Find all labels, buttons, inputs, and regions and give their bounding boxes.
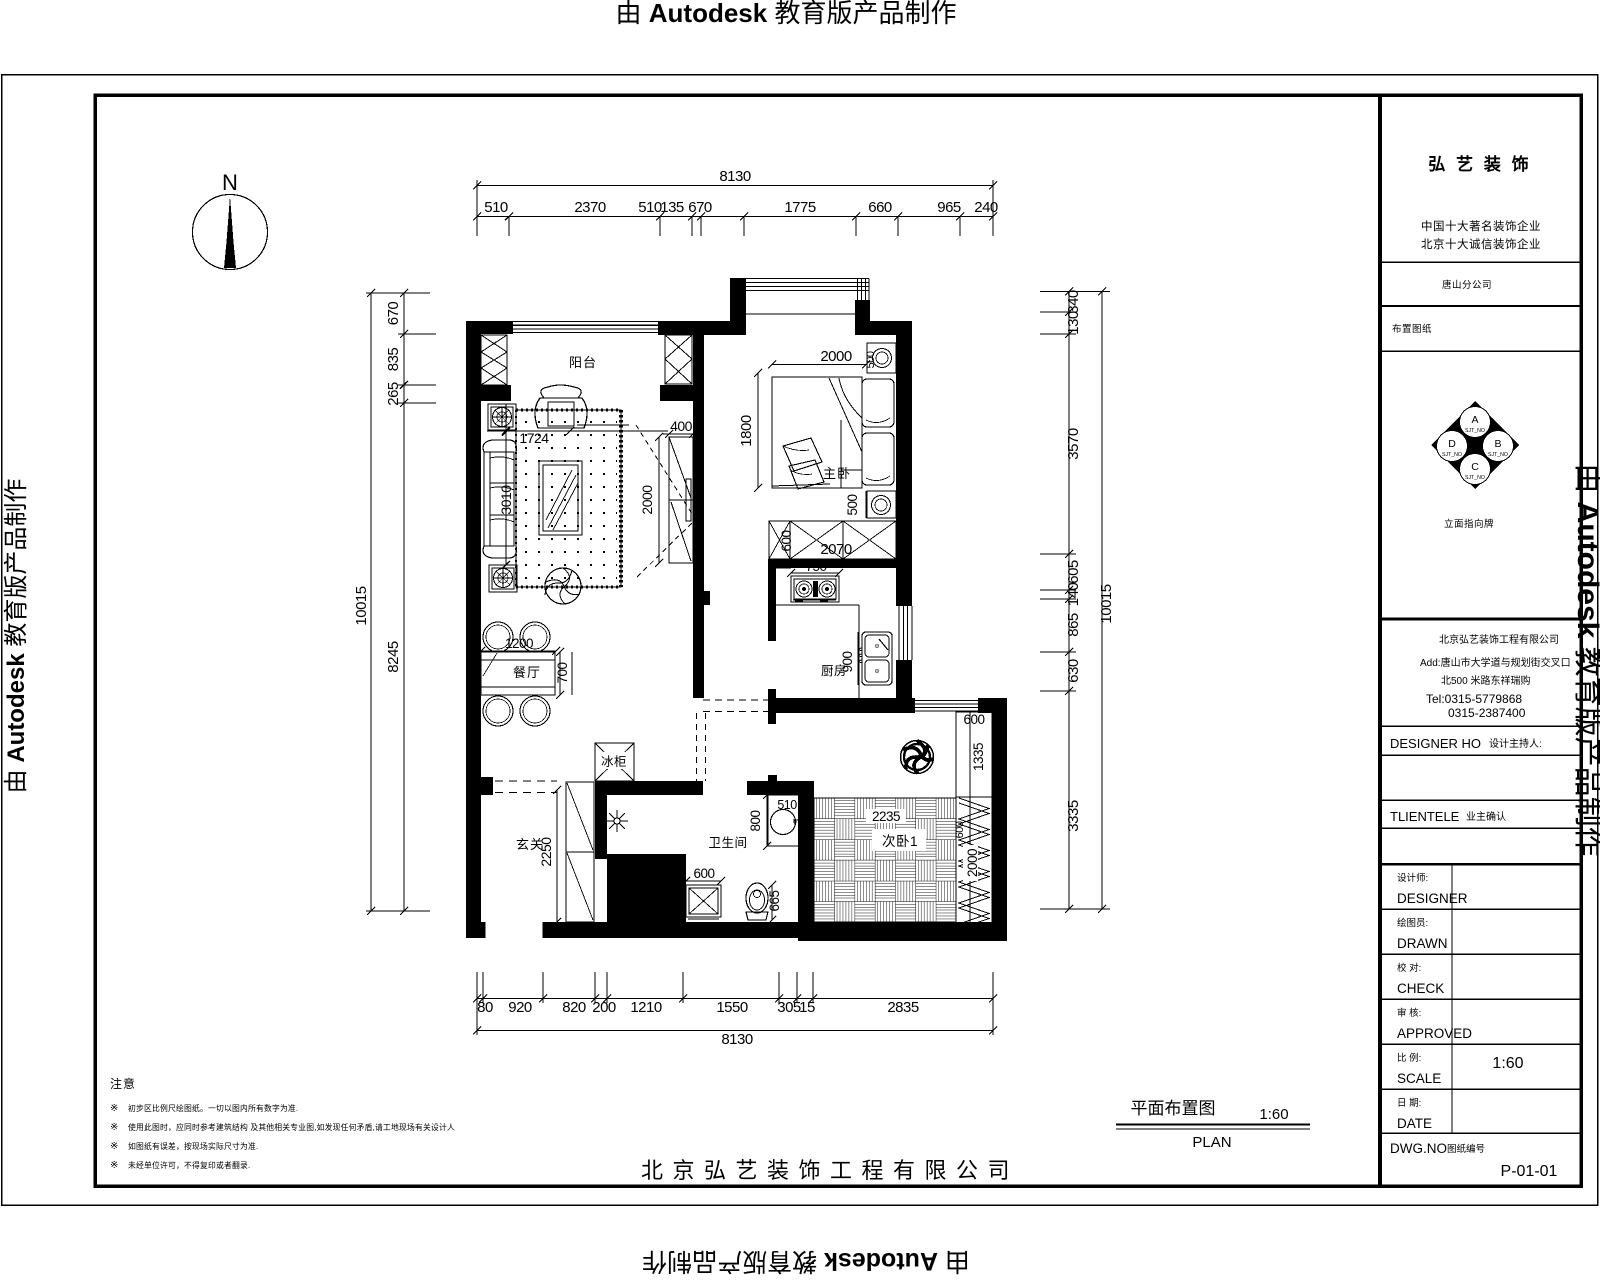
svg-text:业主确认: 业主确认 [1466,810,1506,823]
svg-text:绘图员:: 绘图员: [1397,917,1428,929]
svg-text:餐厅: 餐厅 [513,665,541,680]
svg-text:冰柜: 冰柜 [601,755,627,769]
svg-text:500: 500 [845,494,860,515]
svg-text:3335: 3335 [1065,800,1082,832]
svg-text:965: 965 [937,199,961,216]
svg-text:B: B [1494,438,1501,450]
svg-text:15: 15 [799,999,815,1016]
svg-text:3570: 3570 [1065,428,1082,460]
svg-text:750: 750 [805,559,826,574]
svg-text:北京十大诚信装饰企业: 北京十大诚信装饰企业 [1421,237,1541,251]
svg-text:2370: 2370 [574,199,606,216]
svg-text:SJT_NO: SJT_NO [1465,475,1485,481]
svg-text:10015: 10015 [353,586,370,625]
svg-text:北500 米路东祥瑞购: 北500 米路东祥瑞购 [1441,674,1530,687]
svg-text:北京弘艺装饰工程有限公司: 北京弘艺装饰工程有限公司 [641,1158,1019,1183]
svg-text:1800: 1800 [738,415,755,447]
svg-text:主卧: 主卧 [823,466,851,481]
svg-text:Tel:0315-5779868: Tel:0315-5779868 [1426,692,1522,706]
svg-text:670: 670 [688,199,712,216]
svg-text:8130: 8130 [719,168,751,185]
svg-text:670: 670 [385,302,402,326]
svg-text:80: 80 [477,999,493,1016]
svg-text:800: 800 [748,810,763,831]
svg-text:阳台: 阳台 [569,355,597,370]
svg-text:1200: 1200 [505,636,533,651]
svg-text:8245: 8245 [385,641,402,673]
svg-text:D: D [1448,438,1456,450]
svg-text:8130: 8130 [721,1031,753,1048]
svg-text:A: A [1471,414,1478,426]
svg-text:设计主持人:: 设计主持人: [1489,737,1542,750]
svg-text:SJT_NO: SJT_NO [1442,452,1462,458]
svg-text:立面指向牌: 立面指向牌 [1444,518,1494,530]
svg-text:P-01-01: P-01-01 [1501,1163,1558,1180]
svg-text:校 对:: 校 对: [1397,962,1421,974]
svg-text:2000: 2000 [639,485,655,515]
svg-text:图纸编号: 图纸编号 [1447,1143,1485,1155]
svg-text:未经单位许可，不得复印或者翻录.: 未经单位许可，不得复印或者翻录. [128,1160,250,1170]
svg-text:200: 200 [592,999,616,1016]
svg-text:510: 510 [638,199,662,216]
svg-text:2000: 2000 [820,348,852,365]
svg-text:2235: 2235 [872,809,900,824]
svg-text:500: 500 [865,351,877,368]
svg-text:APPROVED: APPROVED [1397,1026,1472,1041]
svg-text:1:60: 1:60 [1492,1055,1523,1072]
svg-text:240: 240 [974,199,998,216]
svg-text:DRAWN: DRAWN [1397,936,1448,951]
svg-text:布置图纸: 布置图纸 [1392,323,1432,335]
svg-text:510: 510 [484,199,508,216]
svg-text:TLIENTELE: TLIENTELE [1390,809,1460,824]
svg-text:2070: 2070 [820,541,852,558]
svg-text:Add:唐山市大学道与规划街交叉口: Add:唐山市大学道与规划街交叉口 [1420,656,1571,669]
svg-text:510: 510 [777,798,797,812]
svg-text:10015: 10015 [1098,584,1115,623]
svg-text:SJT_NO: SJT_NO [1488,452,1508,458]
svg-text:660: 660 [868,199,892,216]
svg-text:1210: 1210 [630,999,662,1016]
svg-text:665: 665 [767,890,782,911]
svg-text:弘 艺 装 饰: 弘 艺 装 饰 [1428,154,1531,174]
svg-text:C: C [1471,461,1479,473]
svg-text:SCALE: SCALE [1397,1071,1441,1086]
svg-text:600: 600 [779,530,794,551]
svg-text:265: 265 [385,382,402,406]
svg-text:605: 605 [1065,560,1082,584]
svg-text:DESIGNER HO: DESIGNER HO [1390,736,1481,751]
svg-text:1775: 1775 [784,199,816,216]
svg-text:3010: 3010 [498,485,514,515]
svg-text:DWG.NO: DWG.NO [1390,1141,1447,1156]
svg-text:设计师:: 设计师: [1397,872,1428,884]
svg-text:700: 700 [555,662,570,683]
svg-text:卫生间: 卫生间 [708,836,747,850]
svg-text:600: 600 [963,712,984,727]
svg-text:PLAN: PLAN [1192,1134,1231,1151]
svg-text:※: ※ [110,1103,118,1114]
svg-text:日 期:: 日 期: [1397,1098,1421,1109]
svg-text:1:60: 1:60 [1259,1106,1288,1123]
svg-text:中国十大著名装饰企业: 中国十大著名装饰企业 [1421,219,1541,233]
svg-text:由 Autodesk 教育版产品制作: 由 Autodesk 教育版产品制作 [642,1247,970,1275]
svg-text:DATE: DATE [1397,1116,1432,1131]
svg-text:135: 135 [660,199,684,216]
svg-text:820: 820 [562,999,586,1016]
svg-text:305: 305 [777,999,801,1016]
svg-text:600: 600 [954,821,966,838]
svg-text:初步区比例尺绘图纸。一切以图内所有数字为准.: 初步区比例尺绘图纸。一切以图内所有数字为准. [128,1103,298,1113]
svg-text:340: 340 [1065,290,1082,314]
svg-text:CHECK: CHECK [1397,981,1444,996]
svg-text:130: 130 [1065,311,1082,335]
svg-text:630: 630 [1065,659,1082,683]
svg-text:平面布置图: 平面布置图 [1131,1099,1216,1118]
svg-text:北京弘艺装饰工程有限公司: 北京弘艺装饰工程有限公司 [1439,633,1559,646]
svg-text:比 例:: 比 例: [1397,1052,1421,1064]
svg-text:2835: 2835 [887,999,919,1016]
svg-text:DESIGNER: DESIGNER [1397,891,1468,906]
svg-text:使用此图时，应同时参考建筑结构 及其他相关专业图,如发现任何: 使用此图时，应同时参考建筑结构 及其他相关专业图,如发现任何矛盾,请工地现场有关… [128,1122,455,1132]
svg-text:1724: 1724 [519,430,549,446]
svg-text:140: 140 [1065,583,1082,607]
svg-text:600: 600 [693,866,714,881]
svg-text:注意: 注意 [110,1076,136,1091]
svg-text:1550: 1550 [716,999,748,1016]
svg-text:SJT_NO: SJT_NO [1465,428,1485,434]
svg-text:次卧1: 次卧1 [882,834,918,849]
svg-text:N: N [222,170,238,195]
svg-text:※: ※ [110,1141,118,1152]
svg-text:1335: 1335 [971,743,986,771]
svg-text:0315-2387400: 0315-2387400 [1448,706,1526,720]
svg-text:400: 400 [670,418,693,434]
svg-text:※: ※ [110,1122,118,1133]
svg-text:2000: 2000 [965,849,980,877]
svg-text:920: 920 [508,999,532,1016]
svg-text:835: 835 [385,348,402,372]
svg-text:审 核:: 审 核: [1397,1007,1421,1019]
svg-text:865: 865 [1065,613,1082,637]
svg-text:900: 900 [840,651,855,672]
svg-text:由 Autodesk 教育版产品制作: 由 Autodesk 教育版产品制作 [616,0,957,28]
svg-text:唐山分公司: 唐山分公司 [1442,279,1492,291]
svg-text:由 Autodesk 教育版产品制作: 由 Autodesk 教育版产品制作 [1571,463,1600,856]
svg-text:由 Autodesk 教育版产品制作: 由 Autodesk 教育版产品制作 [3,479,30,794]
svg-text:如图纸有误差，按现场实际尺寸为准.: 如图纸有误差，按现场实际尺寸为准. [128,1141,258,1151]
svg-text:※: ※ [110,1160,118,1171]
svg-text:2250: 2250 [538,837,554,867]
